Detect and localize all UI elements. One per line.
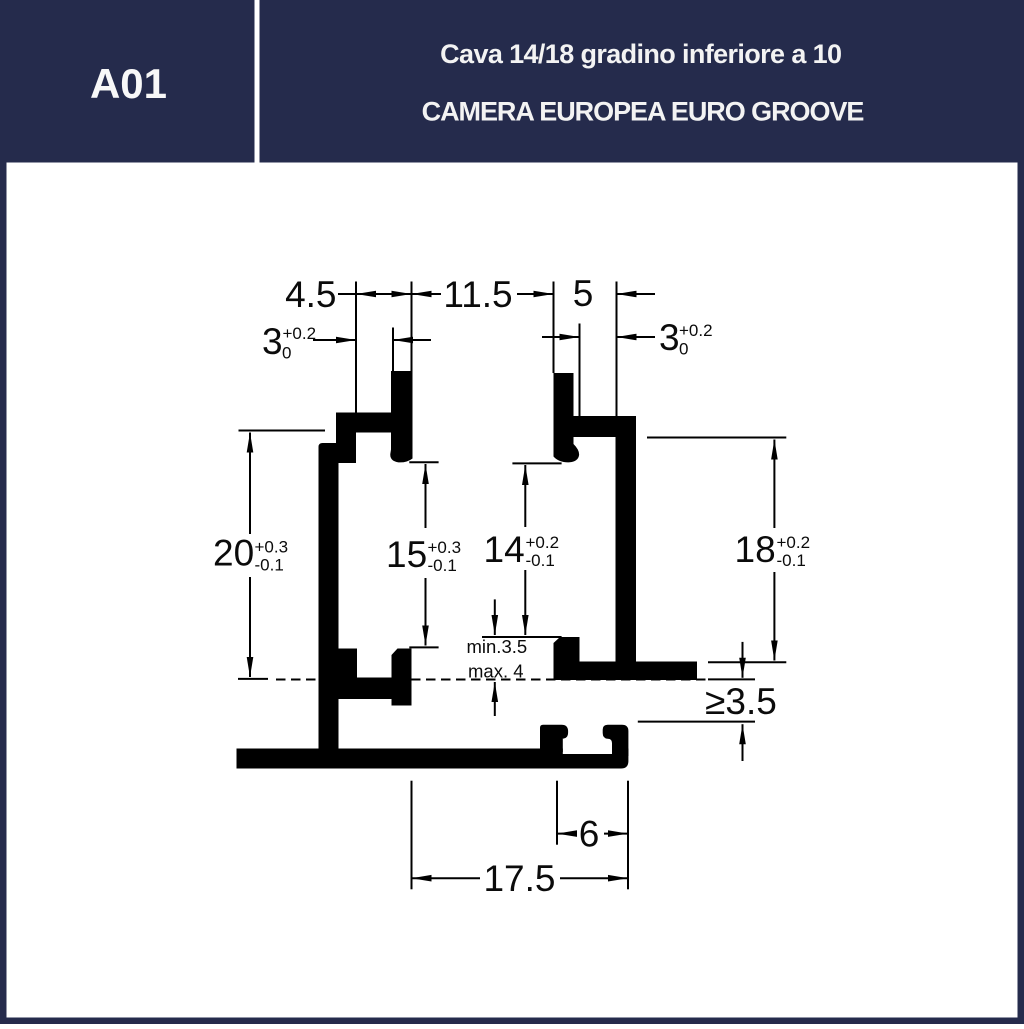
svg-text:4.5: 4.5 [285, 274, 336, 315]
svg-text:+0.2: +0.2 [679, 321, 713, 340]
svg-text:+0.2: +0.2 [777, 533, 811, 552]
svg-text:18: 18 [735, 529, 776, 570]
svg-text:+0.3: +0.3 [255, 538, 289, 557]
svg-text:3: 3 [262, 321, 283, 362]
svg-text:11.5: 11.5 [443, 274, 512, 315]
svg-text:-0.1: -0.1 [777, 551, 806, 570]
svg-text:-0.1: -0.1 [526, 551, 555, 570]
svg-text:≥3.5: ≥3.5 [705, 681, 777, 722]
svg-text:6: 6 [579, 813, 600, 854]
svg-text:Cava 14/18 gradino inferiore a: Cava 14/18 gradino inferiore a 10 [440, 39, 841, 69]
svg-text:-0.1: -0.1 [255, 556, 284, 575]
svg-text:20: 20 [213, 533, 254, 574]
svg-text:-0.1: -0.1 [428, 556, 457, 575]
svg-text:5: 5 [573, 273, 594, 314]
svg-text:3: 3 [659, 317, 680, 358]
svg-text:A01: A01 [90, 60, 167, 107]
svg-text:0: 0 [679, 340, 688, 359]
svg-text:max. 4: max. 4 [468, 661, 524, 682]
svg-text:17.5: 17.5 [483, 858, 555, 899]
svg-text:+0.2: +0.2 [283, 324, 317, 343]
svg-text:0: 0 [282, 344, 291, 363]
svg-text:15: 15 [386, 534, 427, 575]
svg-text:min.3.5: min.3.5 [467, 636, 528, 657]
svg-text:CAMERA EUROPEA EURO GROOVE: CAMERA EUROPEA EURO GROOVE [422, 97, 864, 127]
svg-text:+0.3: +0.3 [428, 538, 462, 557]
svg-text:+0.2: +0.2 [526, 533, 560, 552]
svg-text:14: 14 [484, 529, 525, 570]
